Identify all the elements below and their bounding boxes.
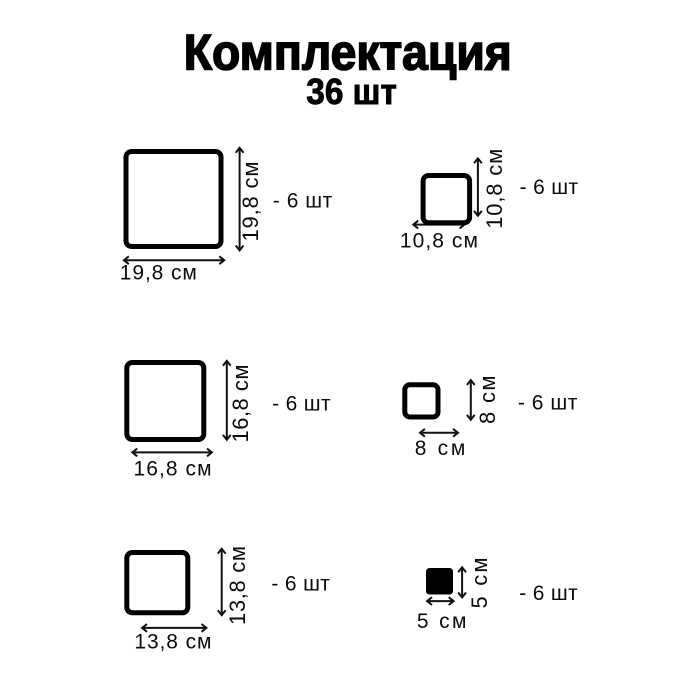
svg-text:13,8 см: 13,8 см [225, 546, 250, 625]
svg-text:- 6 шт: - 6 шт [272, 393, 331, 416]
svg-text:- 6 шт: - 6 шт [273, 189, 333, 212]
svg-text:19,8 см: 19,8 см [238, 162, 263, 242]
svg-text:19,8 см: 19,8 см [120, 262, 197, 285]
svg-text:5 см: 5 см [417, 610, 467, 633]
svg-text:- 6 шт: - 6 шт [518, 392, 578, 415]
svg-text:5 см: 5 см [467, 558, 492, 609]
svg-text:10,8 см: 10,8 см [482, 149, 507, 229]
svg-text:16,8 см: 16,8 см [228, 365, 253, 443]
svg-text:8 см: 8 см [475, 376, 500, 425]
svg-text:- 6 шт: - 6 шт [519, 582, 578, 605]
svg-text:36 шт: 36 шт [306, 71, 397, 112]
svg-text:8 см: 8 см [415, 437, 466, 460]
svg-text:- 6 шт: - 6 шт [520, 176, 579, 199]
svg-text:13,8 см: 13,8 см [134, 631, 211, 654]
svg-text:- 6 шт: - 6 шт [271, 572, 330, 595]
